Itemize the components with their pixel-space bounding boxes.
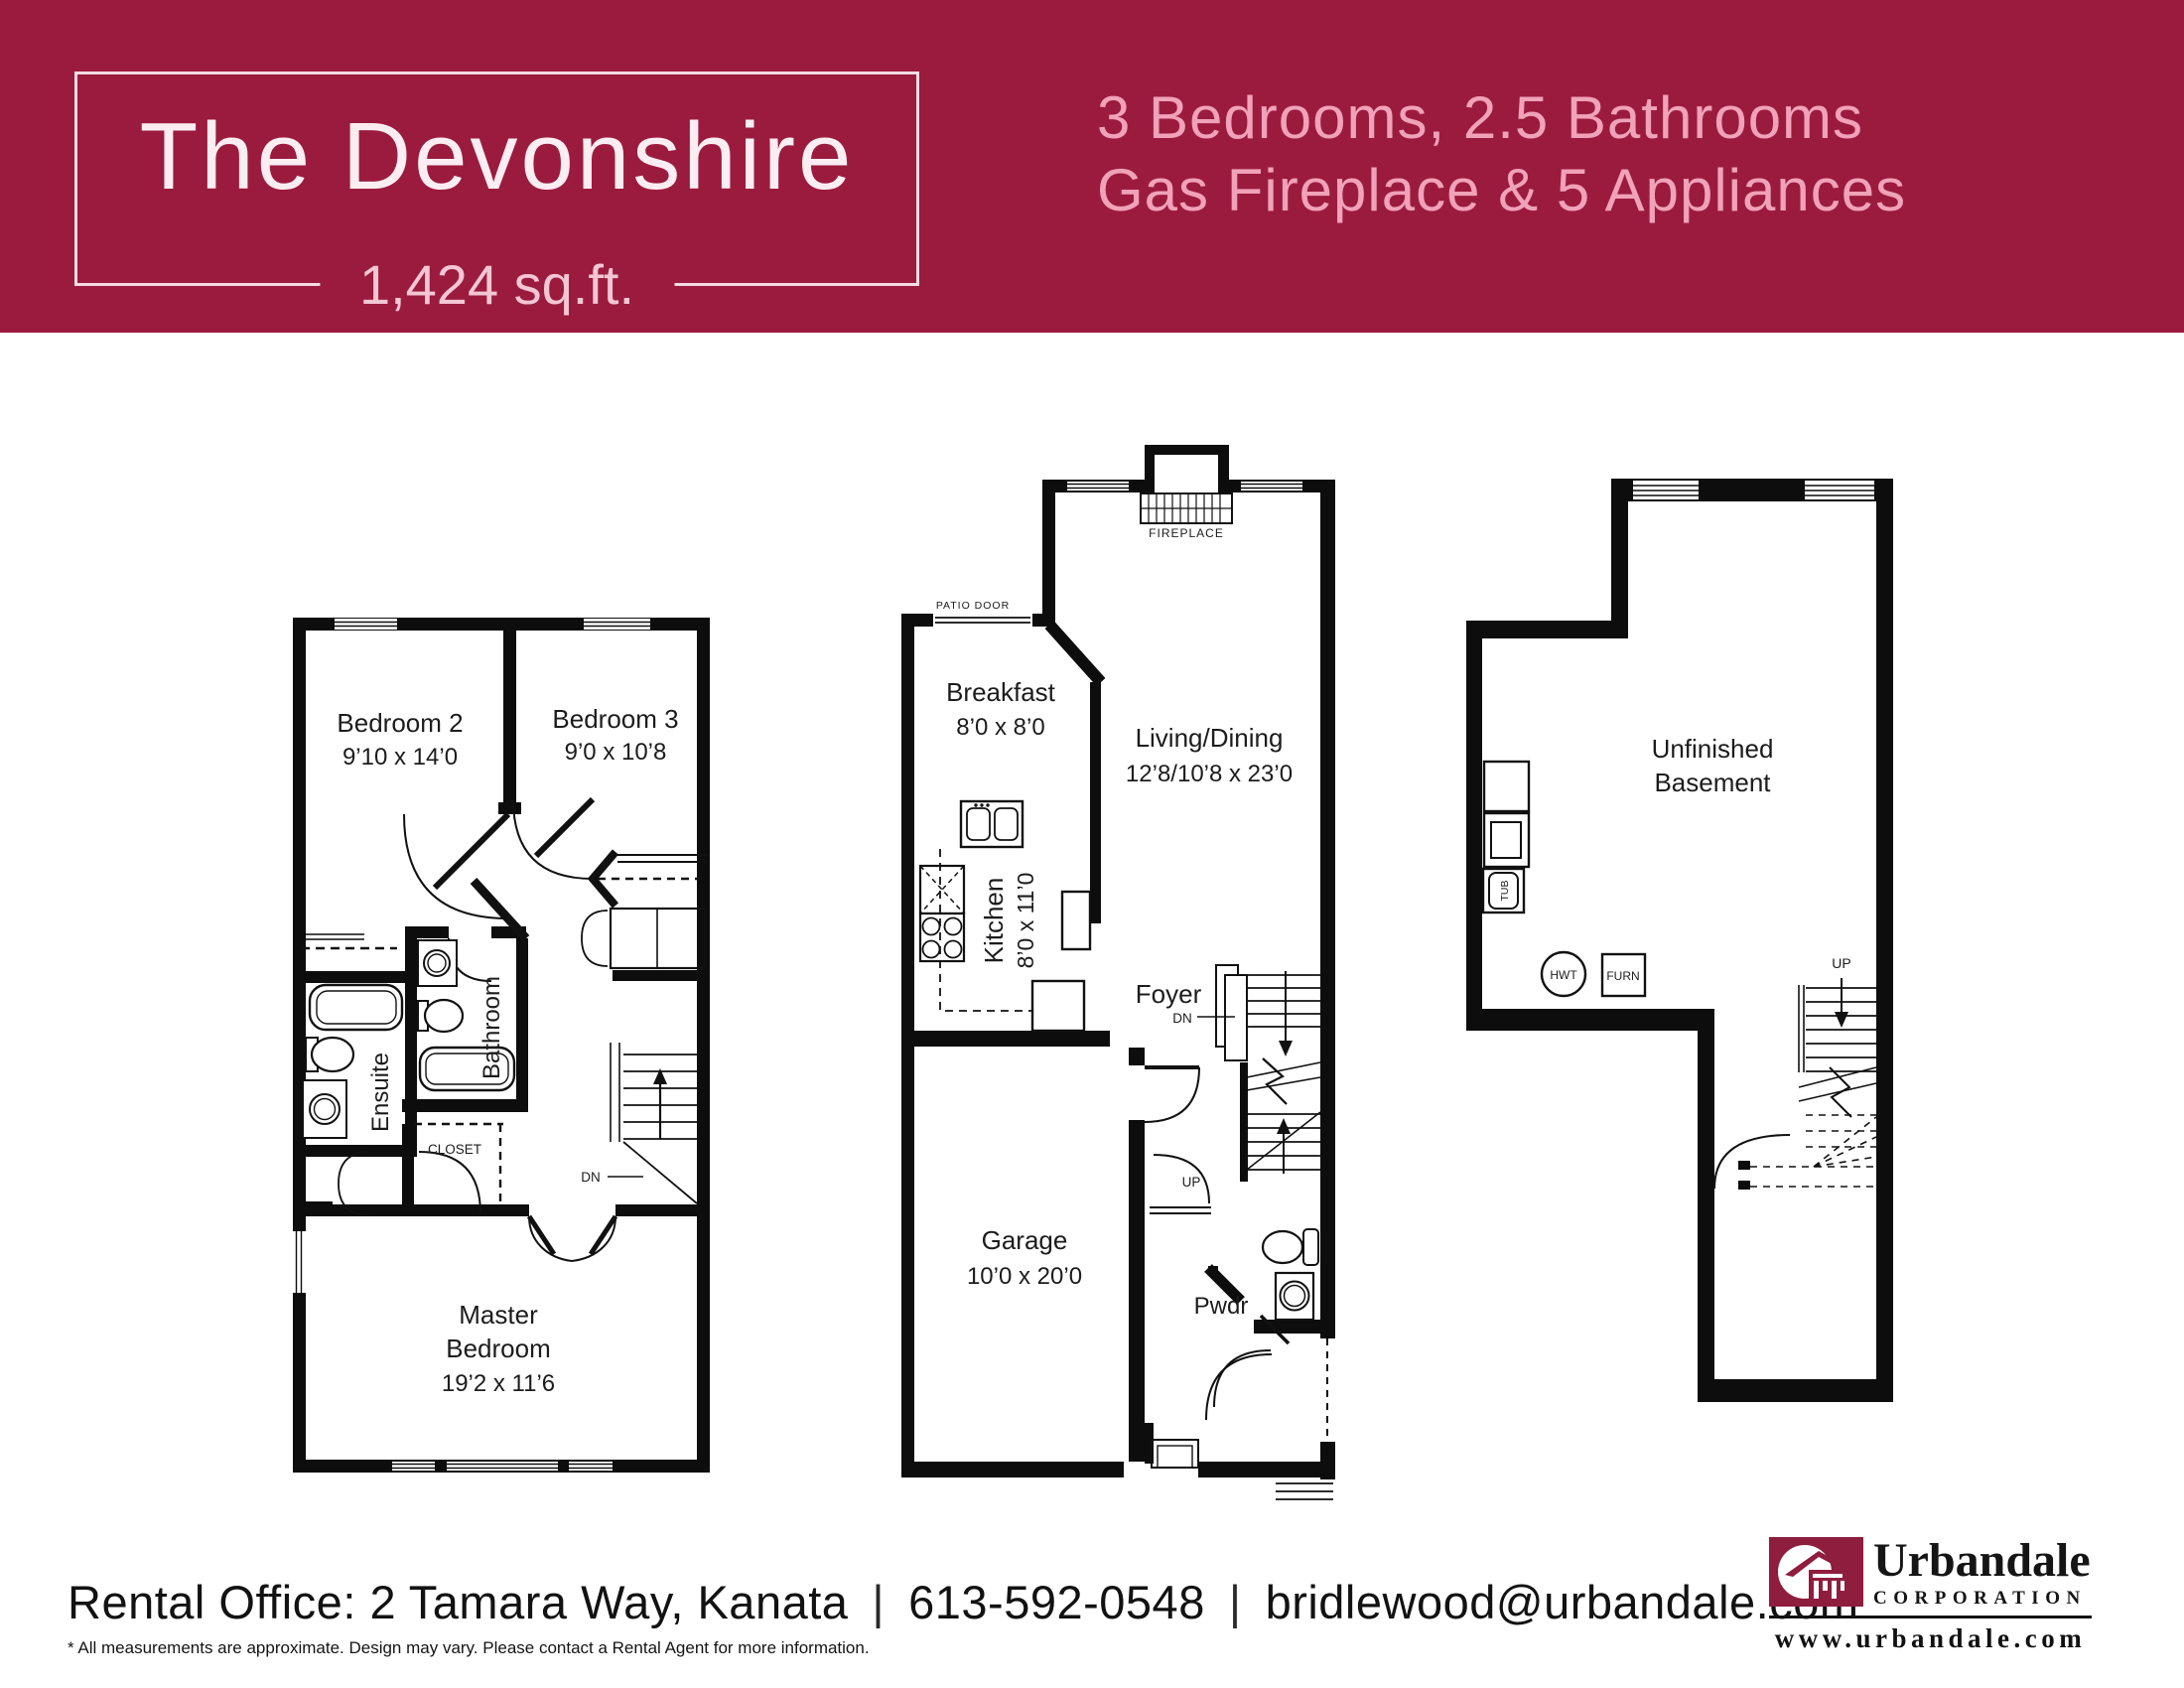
separator: | bbox=[1229, 1576, 1242, 1628]
dn-label: DN bbox=[581, 1170, 601, 1185]
garage-label: Garage bbox=[982, 1225, 1068, 1255]
garage-dim: 10’0 x 20’0 bbox=[967, 1263, 1082, 1290]
tub-label: TUB bbox=[1499, 881, 1511, 902]
pwdr-label: Pwdr bbox=[1194, 1293, 1249, 1320]
bathroom-label: Bathroom bbox=[478, 976, 505, 1079]
features-line-1: 3 Bedrooms, 2.5 Bathrooms bbox=[1097, 81, 1906, 154]
basement-label-1: Unfinished bbox=[1652, 734, 1774, 764]
closet-label: CLOSET bbox=[428, 1142, 481, 1157]
basement-labels: Unfinished Basement TUB HWT FURN UP bbox=[1499, 734, 1851, 983]
dn-label: DN bbox=[1172, 1011, 1192, 1026]
fireplace-box bbox=[1155, 455, 1218, 493]
breakfast-angled-wall bbox=[1049, 625, 1101, 682]
basement-fixtures bbox=[1483, 762, 1645, 996]
living-niche bbox=[1062, 892, 1090, 949]
header-band: The Devonshire 1,424 sq.ft. 3 Bedrooms, … bbox=[0, 0, 2184, 333]
master-dim: 19’2 x 11’6 bbox=[442, 1370, 555, 1397]
logo-website: www.urbandale.com bbox=[1769, 1623, 2092, 1654]
rental-office-address: Rental Office: 2 Tamara Way, Kanata bbox=[68, 1576, 848, 1628]
flyer-page: The Devonshire 1,424 sq.ft. 3 Bedrooms, … bbox=[0, 0, 2184, 1688]
disclaimer-text: * All measurements are approximate. Desi… bbox=[68, 1638, 870, 1658]
floorplan-basement: Unfinished Basement TUB HWT FURN UP bbox=[1464, 472, 1901, 1415]
breakfast-label: Breakfast bbox=[946, 677, 1056, 707]
floorplan-second-floor: Bedroom 2 9’10 x 14’0 Bedroom 3 9’0 x 10… bbox=[288, 611, 720, 1479]
fireplace-label: FIREPLACE bbox=[1149, 526, 1224, 540]
floorplan-main-floor: FIREPLACE PATIO DOOR Breakfast 8’0 x 8’0… bbox=[893, 427, 1340, 1509]
rental-office-phone: 613-592-0548 bbox=[908, 1576, 1205, 1628]
second-floor-stairs bbox=[608, 1043, 697, 1203]
logo-subtitle: CORPORATION bbox=[1873, 1588, 2091, 1610]
bedroom2-label: Bedroom 2 bbox=[337, 708, 463, 738]
breakfast-dim: 8’0 x 8’0 bbox=[956, 714, 1044, 741]
powder-room-fixtures bbox=[1263, 1229, 1318, 1320]
up-label: UP bbox=[1832, 955, 1850, 971]
plan-sqft: 1,424 sq.ft. bbox=[320, 252, 674, 317]
urbandale-house-icon bbox=[1769, 1537, 1863, 1607]
hwt-label: HWT bbox=[1550, 968, 1577, 982]
fireplace-hearth bbox=[1141, 493, 1232, 523]
up-label: UP bbox=[1182, 1175, 1201, 1190]
logo-name: Urbandale bbox=[1873, 1537, 2091, 1585]
footer-contact-line: Rental Office: 2 Tamara Way, Kanata|613-… bbox=[68, 1575, 1859, 1629]
header-features: 3 Bedrooms, 2.5 Bathrooms Gas Fireplace … bbox=[1097, 81, 1906, 226]
living-dining-dim: 12’8/10’8 x 23’0 bbox=[1126, 761, 1293, 787]
logo-divider bbox=[1769, 1616, 2092, 1618]
main-floor-stairs bbox=[1197, 965, 1320, 1174]
master-label-1: Master bbox=[459, 1300, 538, 1330]
plan-name: The Devonshire bbox=[77, 102, 916, 211]
bedroom2-dim: 9’10 x 14’0 bbox=[342, 744, 458, 771]
kitchen-label: Kitchen bbox=[979, 878, 1009, 964]
kitchen-dim: 8’0 x 11’0 bbox=[1013, 873, 1038, 969]
living-dining-label: Living/Dining bbox=[1136, 723, 1284, 753]
patio-door-label: PATIO DOOR bbox=[936, 600, 1010, 612]
main-floor-labels: FIREPLACE PATIO DOOR Breakfast 8’0 x 8’0… bbox=[936, 526, 1293, 1320]
basement-walls bbox=[1466, 479, 1893, 1402]
bedroom3-dim: 9’0 x 10’8 bbox=[565, 739, 667, 766]
second-floor-closet-shelf bbox=[593, 852, 707, 968]
ensuite-label: Ensuite bbox=[367, 1053, 394, 1132]
foyer-label: Foyer bbox=[1136, 979, 1202, 1009]
features-line-2: Gas Fireplace & 5 Appliances bbox=[1097, 154, 1906, 226]
furn-label: FURN bbox=[1606, 969, 1639, 983]
master-label-2: Bedroom bbox=[446, 1334, 551, 1363]
urbandale-logo: Urbandale CORPORATION www.urbandale.com bbox=[1769, 1537, 2092, 1654]
bedroom3-label: Bedroom 3 bbox=[552, 704, 678, 734]
basement-label-2: Basement bbox=[1654, 768, 1771, 797]
plan-title-box: The Devonshire 1,424 sq.ft. bbox=[74, 71, 919, 286]
basement-stairs bbox=[1714, 978, 1876, 1189]
separator: | bbox=[872, 1576, 885, 1628]
